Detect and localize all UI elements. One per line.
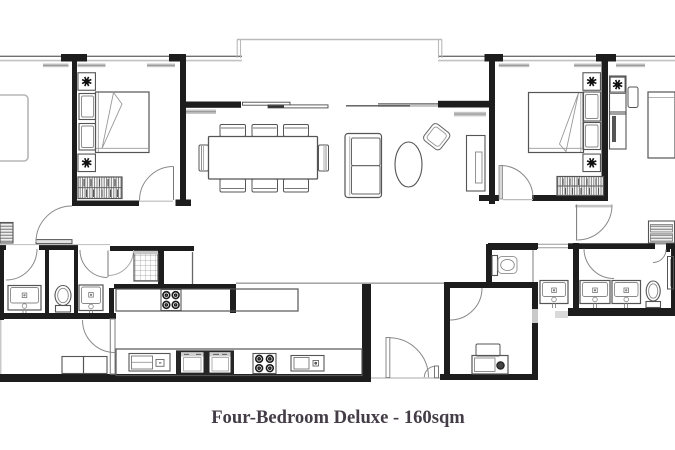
- svg-text:Four-Bedroom Deluxe - 160sqm: Four-Bedroom Deluxe - 160sqm: [211, 407, 465, 428]
